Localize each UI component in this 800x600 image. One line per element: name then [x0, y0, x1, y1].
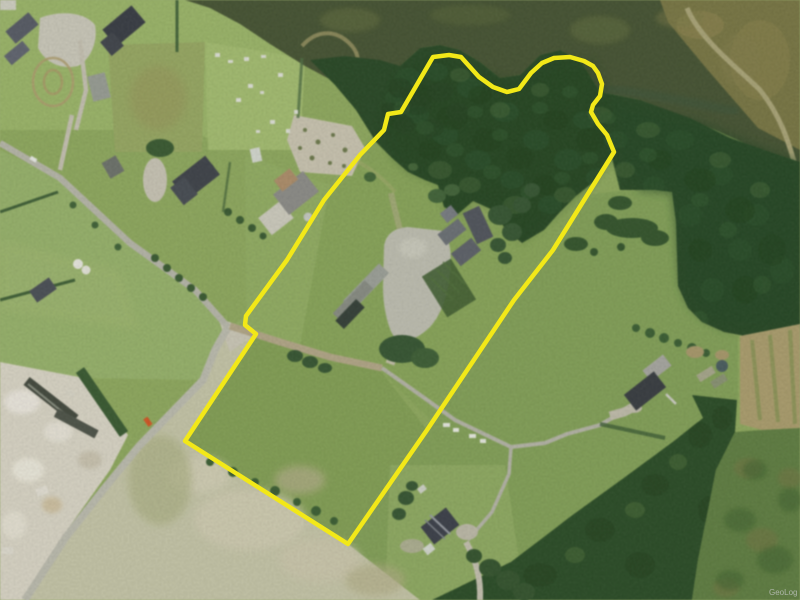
svg-text:GeoLog: GeoLog	[769, 588, 797, 597]
